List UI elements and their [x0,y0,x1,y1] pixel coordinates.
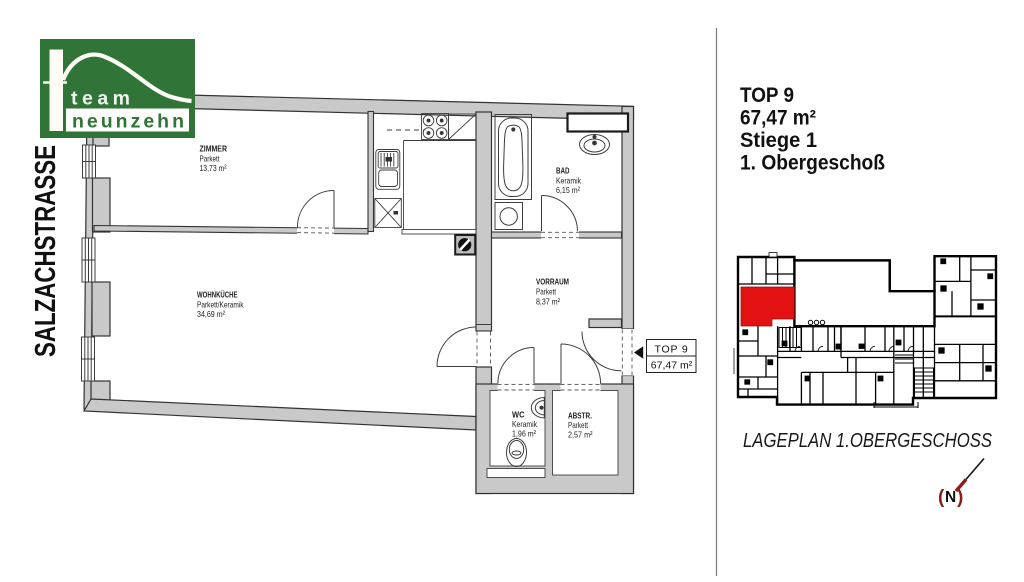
svg-text:TOP 9: TOP 9 [740,84,794,107]
svg-text:2,57 m²: 2,57 m² [568,430,593,440]
svg-text:Keramik: Keramik [512,419,538,429]
svg-text:Parkett/Keramik: Parkett/Keramik [197,300,244,310]
svg-text:ZIMMER: ZIMMER [200,144,228,154]
svg-text:6,15 m²: 6,15 m² [556,185,580,195]
svg-text:ABSTR.: ABSTR. [568,411,592,421]
svg-text:Parkett: Parkett [536,287,556,297]
svg-text:13,73 m²: 13,73 m² [200,163,227,173]
svg-text:Parkett: Parkett [200,154,220,164]
svg-text:8,37 m²: 8,37 m² [536,297,560,307]
svg-text:BAD: BAD [556,166,570,176]
svg-text:34,69 m²: 34,69 m² [197,309,225,319]
svg-text:SALZACHSTRASSE: SALZACHSTRASSE [30,145,62,357]
svg-text:Keramik: Keramik [556,176,582,186]
svg-text:N: N [945,489,956,506]
svg-text:67,47 m²: 67,47 m² [651,360,693,372]
svg-text:1,96 m²: 1,96 m² [512,429,536,439]
svg-text:Stiege 1: Stiege 1 [740,129,817,152]
svg-text:Parkett: Parkett [568,420,588,430]
svg-text:1. Obergeschoß: 1. Obergeschoß [740,152,885,175]
svg-text:WC: WC [512,410,525,420]
svg-text:LAGEPLAN 1.OBERGESCHOSS: LAGEPLAN 1.OBERGESCHOSS [743,429,992,452]
svg-text:VORRAUM: VORRAUM [536,277,569,287]
svg-text:67,47 m²: 67,47 m² [740,107,816,130]
svg-text:TOP 9: TOP 9 [655,344,689,356]
svg-text:(: ( [938,487,945,508]
svg-text:WOHNKÜCHE: WOHNKÜCHE [197,290,238,300]
